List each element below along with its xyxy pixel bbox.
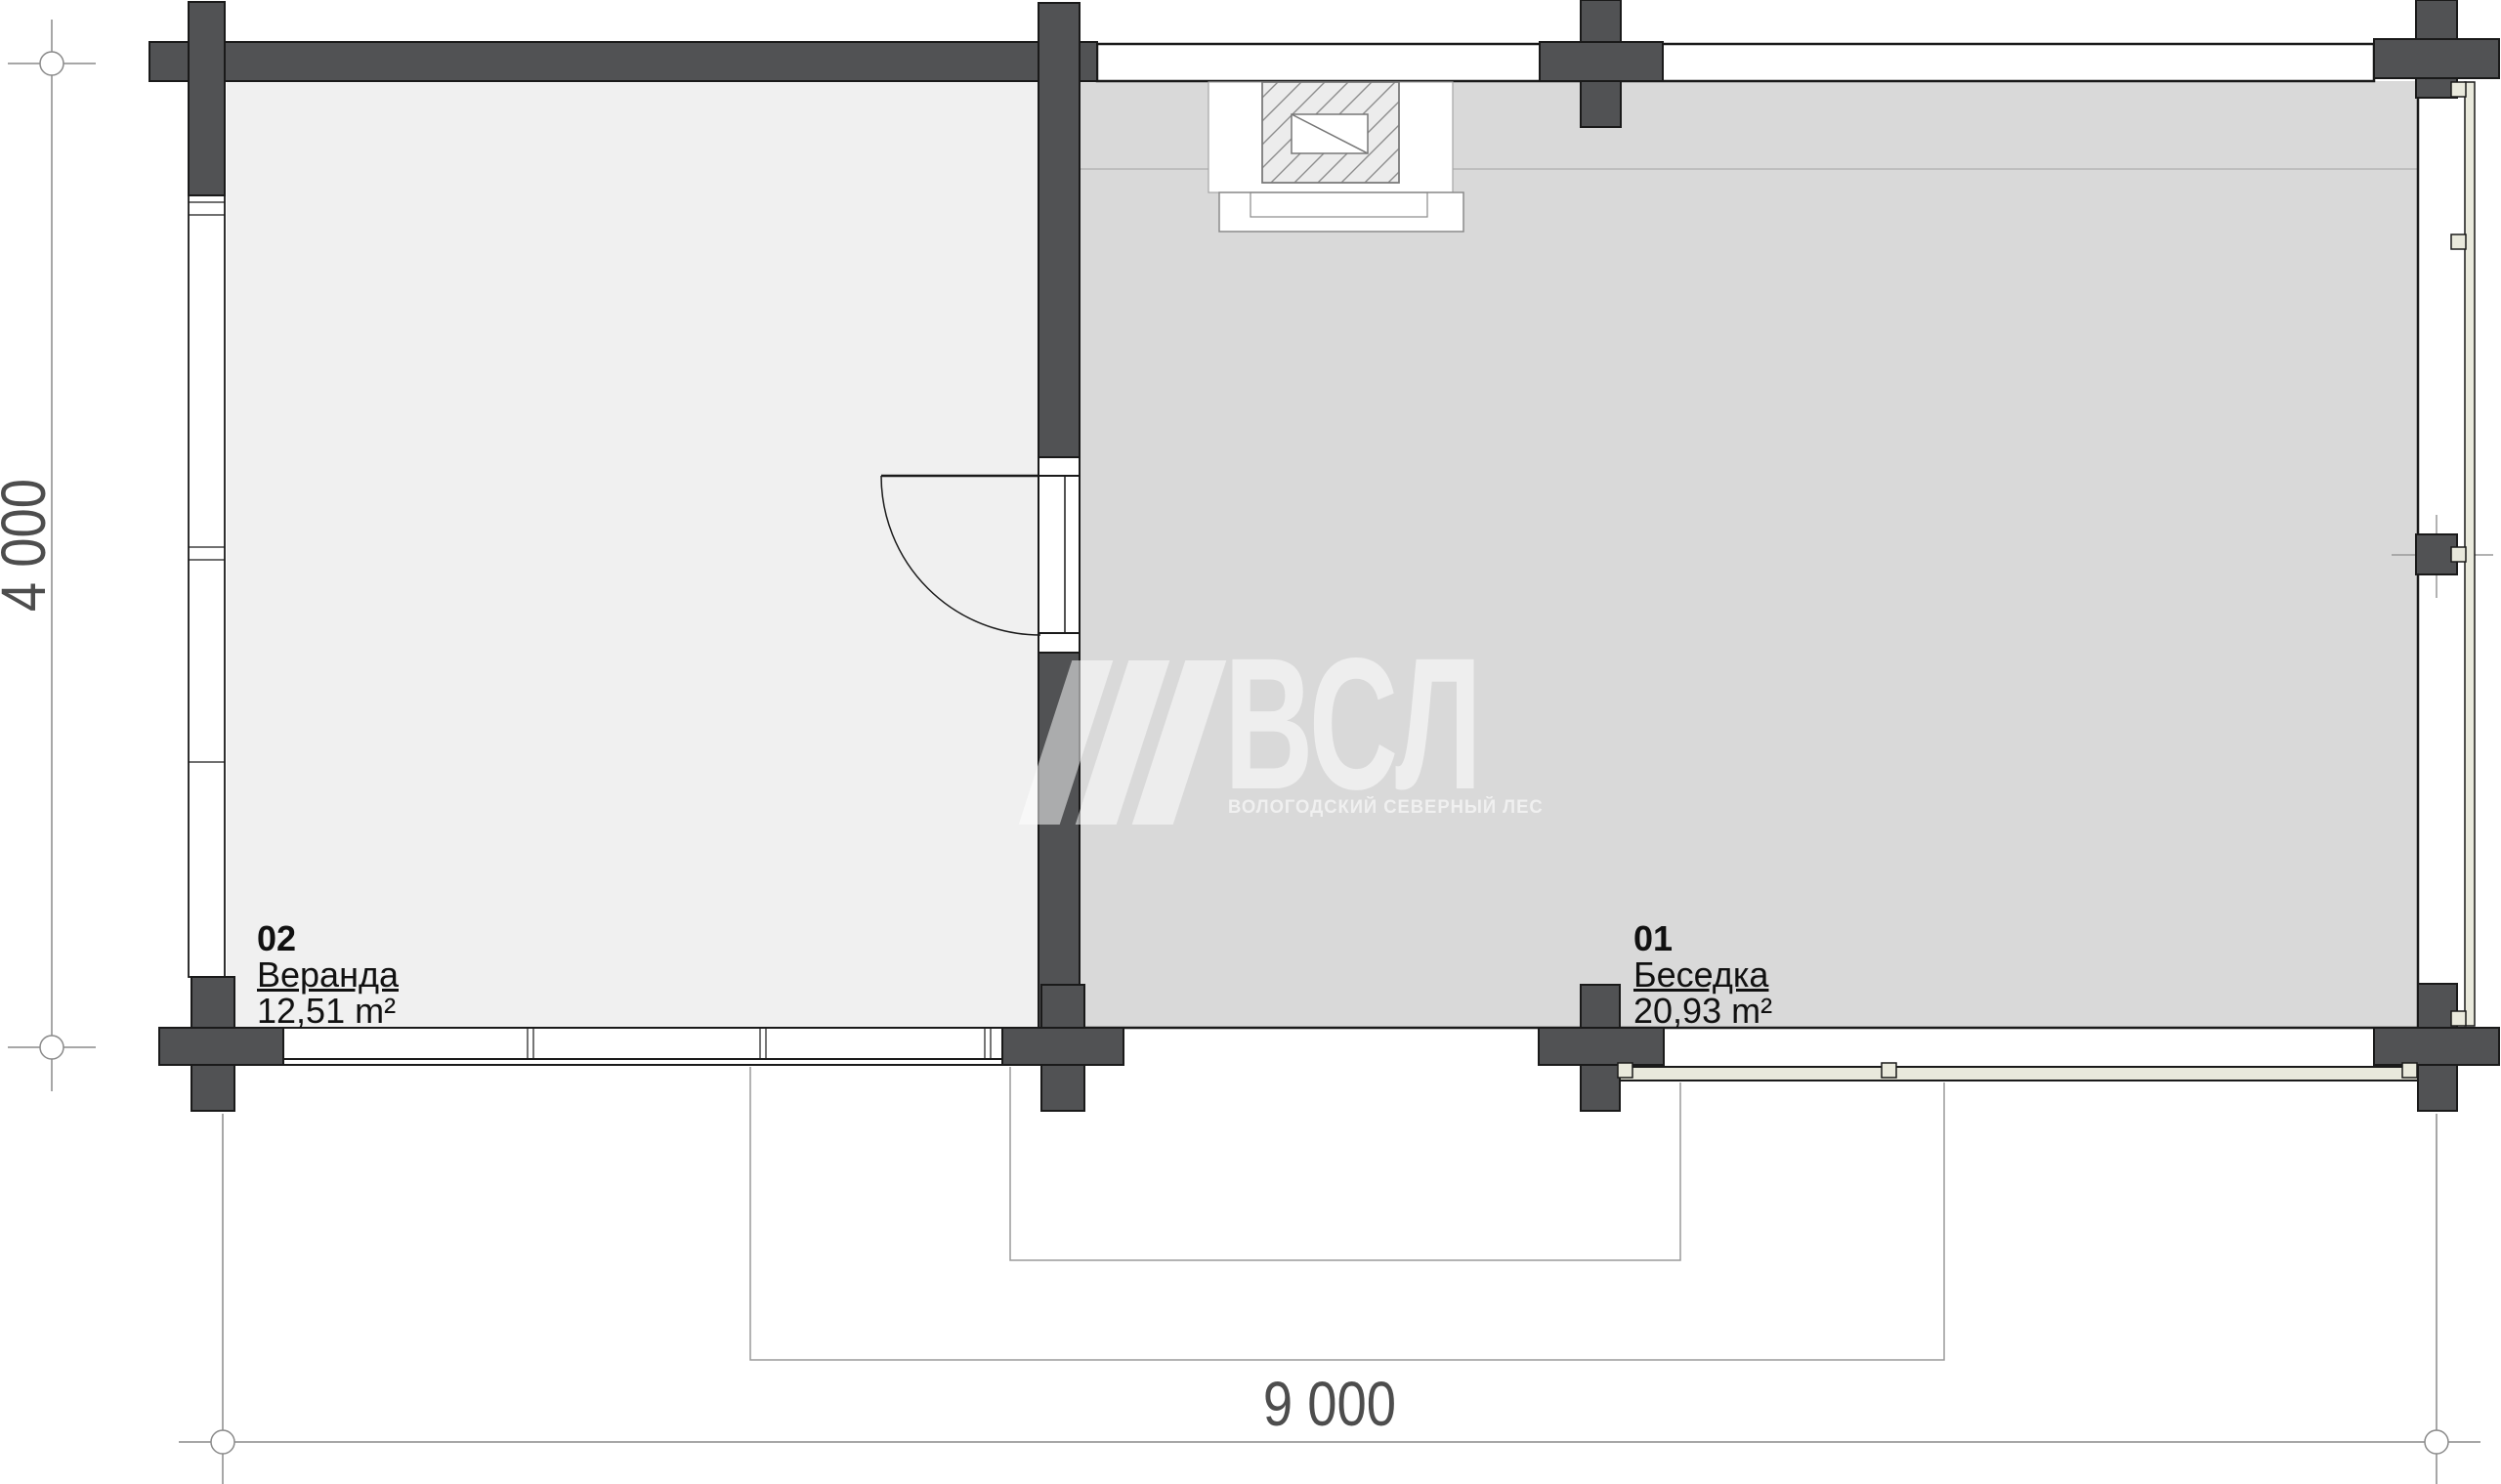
column-bottom-center-h bbox=[1539, 1028, 1664, 1065]
fireplace bbox=[1208, 82, 1463, 232]
north-glazing-band bbox=[1097, 44, 2374, 81]
veranda-floor bbox=[227, 81, 1039, 1028]
column-bottom-left-h bbox=[159, 1028, 283, 1065]
north-wall-veranda bbox=[149, 42, 1097, 81]
column-top-right-h bbox=[2374, 39, 2499, 78]
room-name: Беседка bbox=[1633, 956, 1772, 993]
floor-plan-drawing bbox=[0, 0, 2501, 1484]
room-number: 01 bbox=[1633, 920, 1772, 956]
dimension-width-label: 9 000 bbox=[1263, 1368, 1396, 1440]
room-number: 02 bbox=[257, 920, 399, 956]
dimension-height-label: 4 000 bbox=[0, 479, 60, 612]
partition-wall-upper bbox=[1039, 3, 1080, 457]
column-top-center-h bbox=[1540, 42, 1663, 81]
partition-wall-lower bbox=[1039, 653, 1080, 1028]
room-label-gazebo: 01 Беседка 20,93 m² bbox=[1633, 920, 1772, 1029]
room-area: 20,93 m² bbox=[1633, 993, 1772, 1029]
column-bottom-middle-h bbox=[1002, 1028, 1123, 1065]
column-bottom-right-h bbox=[2374, 1028, 2499, 1065]
floor-plan-canvas: 02 Веранда 12,51 m² 01 Беседка 20,93 m² … bbox=[0, 0, 2501, 1484]
column-top-left bbox=[189, 2, 225, 195]
west-window-band bbox=[189, 195, 225, 977]
entrance-steps bbox=[750, 1067, 1944, 1360]
south-window-band-veranda bbox=[166, 1028, 1002, 1065]
axis-marker bbox=[40, 52, 64, 75]
room-name: Веранда bbox=[257, 956, 399, 993]
axis-marker bbox=[40, 1036, 64, 1059]
axis-marker bbox=[211, 1430, 234, 1454]
room-label-veranda: 02 Веранда 12,51 m² bbox=[257, 920, 399, 1029]
south-glazing-band bbox=[1620, 1067, 2418, 1081]
room-area: 12,51 m² bbox=[257, 993, 399, 1029]
axis-marker bbox=[2425, 1430, 2448, 1454]
